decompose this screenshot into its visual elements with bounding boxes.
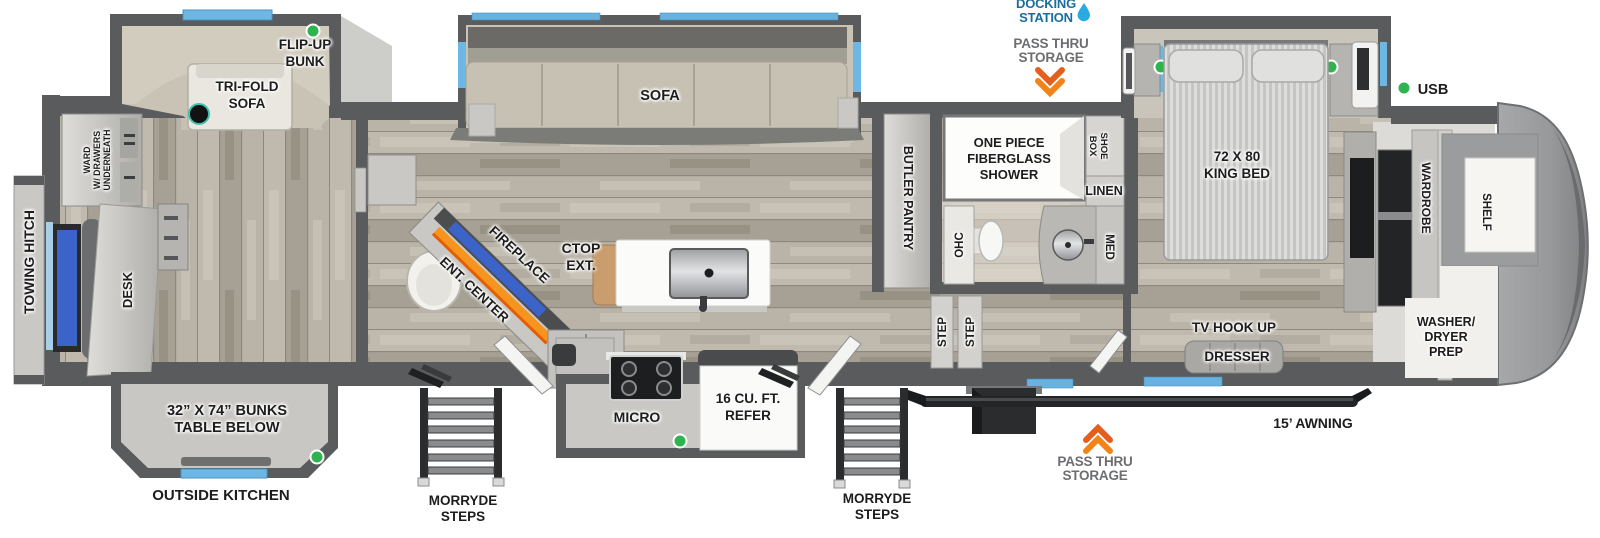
svg-text:STEP: STEP [937,317,949,347]
svg-text:OUTSIDE KITCHEN: OUTSIDE KITCHEN [152,487,290,504]
svg-text:72 X 80: 72 X 80 [1214,149,1261,164]
svg-text:UNDERNEATH: UNDERNEATH [102,130,112,191]
svg-text:DESK: DESK [120,271,135,308]
svg-text:STEPS: STEPS [441,509,485,524]
svg-text:STORAGE: STORAGE [1062,468,1127,483]
svg-text:W/ DRAWERS: W/ DRAWERS [92,131,102,189]
svg-text:MORRYDE: MORRYDE [843,491,912,506]
svg-text:PASS THRU: PASS THRU [1013,36,1088,51]
svg-text:STORAGE: STORAGE [1018,50,1083,65]
svg-text:PASS THRU: PASS THRU [1057,454,1132,469]
svg-text:OHC: OHC [954,232,966,258]
svg-text:KING BED: KING BED [1204,166,1270,181]
svg-text:TOWING HITCH: TOWING HITCH [21,210,37,314]
svg-text:SHOWER: SHOWER [980,167,1039,182]
svg-text:BUTLER PANTRY: BUTLER PANTRY [901,146,915,251]
svg-text:REFER: REFER [725,408,771,423]
svg-text:STEP: STEP [965,317,977,347]
svg-text:FLIP-UP: FLIP-UP [279,37,332,52]
svg-text:TABLE BELOW: TABLE BELOW [174,420,280,436]
svg-text:ONE PIECE: ONE PIECE [974,135,1045,150]
svg-text:16 CU. FT.: 16 CU. FT. [716,391,781,406]
svg-text:USB: USB [1418,82,1449,98]
svg-text:STATION: STATION [1019,10,1073,25]
svg-text:WARDROBE: WARDROBE [1419,162,1433,233]
svg-text:LINEN: LINEN [1085,184,1123,198]
svg-text:MICRO: MICRO [614,409,661,425]
svg-text:CTOP: CTOP [562,240,601,256]
svg-text:DRESSER: DRESSER [1204,349,1270,364]
svg-text:STEPS: STEPS [855,507,899,522]
svg-text:SHELF: SHELF [1480,193,1492,231]
svg-text:EXT.: EXT. [566,257,596,273]
svg-text:WARD: WARD [82,147,92,174]
svg-text:SOFA: SOFA [229,96,266,111]
svg-text:WASHER/: WASHER/ [1417,315,1476,329]
svg-text:BOX: BOX [1087,136,1098,157]
svg-text:BUNK: BUNK [286,54,325,69]
svg-text:SOFA: SOFA [640,88,680,104]
svg-text:FIBERGLASS: FIBERGLASS [967,151,1051,166]
svg-text:32” X 74” BUNKS: 32” X 74” BUNKS [167,403,287,419]
svg-text:PREP: PREP [1429,345,1463,359]
svg-text:MORRYDE: MORRYDE [429,493,498,508]
svg-text:DRYER: DRYER [1424,330,1467,344]
svg-text:TV HOOK UP: TV HOOK UP [1192,320,1276,335]
svg-text:MED: MED [1103,234,1115,260]
svg-text:TRI-FOLD: TRI-FOLD [216,79,279,94]
svg-text:15’ AWNING: 15’ AWNING [1273,415,1353,431]
svg-text:SHOE: SHOE [1098,133,1109,160]
